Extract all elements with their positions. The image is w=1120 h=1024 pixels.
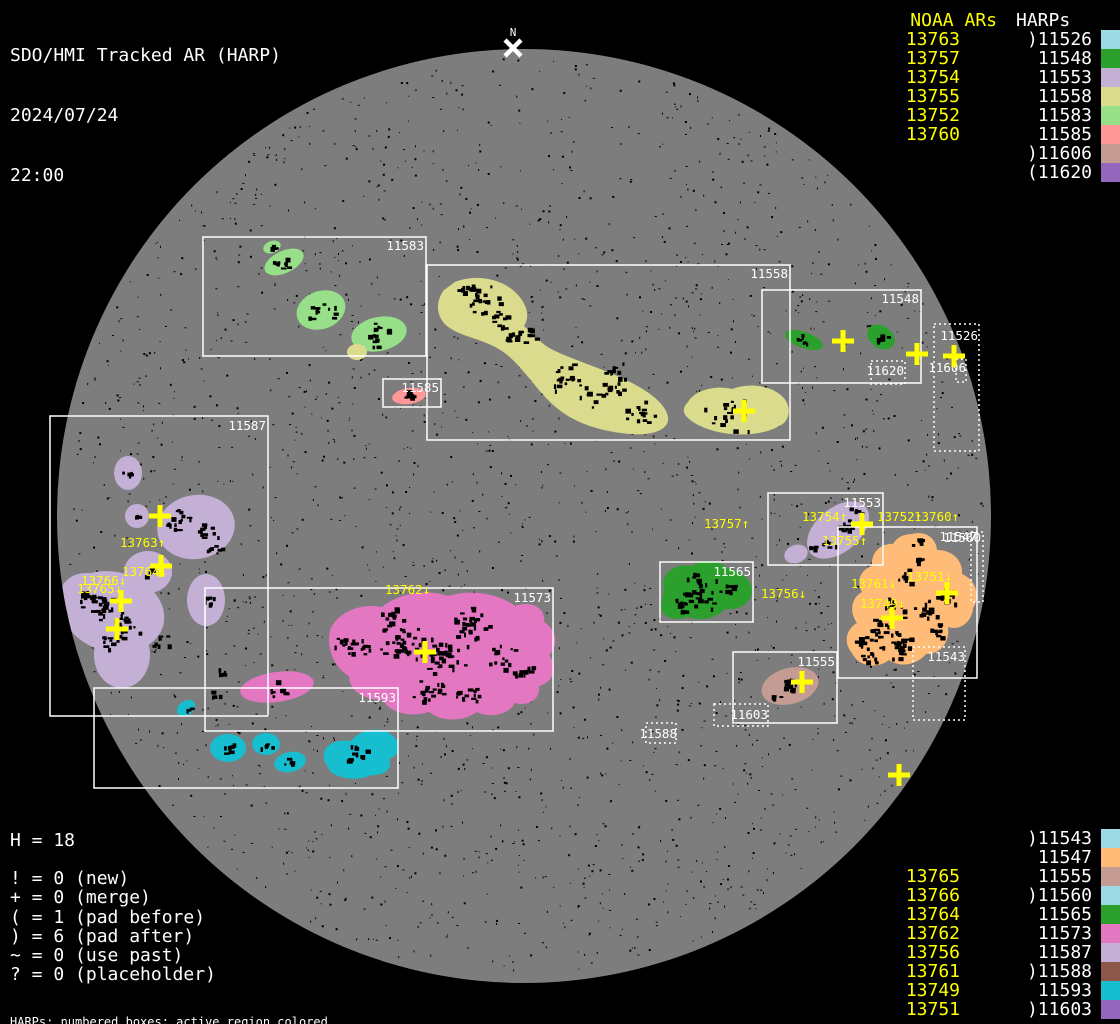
legend-row: 1375611587	[900, 943, 1120, 962]
harp-number: )11606	[960, 144, 1092, 163]
harp-number: 11558	[960, 87, 1092, 106]
harp-number: 11555	[960, 867, 1092, 886]
noaa-ar-number: 13762	[900, 924, 960, 943]
status-symbol-line: ) = 6 (pad after)	[10, 927, 216, 946]
harp-number: 11585	[960, 125, 1092, 144]
harp-box-label-11588: 11588	[639, 726, 677, 741]
harp-box-label-11603: 11603	[730, 707, 768, 722]
harp-color-swatch	[1101, 924, 1120, 943]
legend-row: 1376411565	[900, 905, 1120, 924]
harp-box-label-11565: 11565	[713, 564, 751, 579]
noaa-label: 13762↓	[385, 582, 430, 597]
harp-color-swatch	[1101, 867, 1120, 886]
status-symbol-line: + = 0 (merge)	[10, 888, 216, 907]
harp-number: )11526	[960, 30, 1092, 49]
noaa-label: 13754↑	[802, 509, 847, 524]
status-symbol-line: ? = 0 (placeholder)	[10, 965, 216, 984]
noaa-label: 13763↑	[120, 535, 165, 550]
harp-color-swatch	[1101, 87, 1120, 106]
noaa-label: 13760↑	[914, 509, 959, 524]
observation-time: 22:00	[10, 166, 281, 186]
harp-number: 11553	[960, 68, 1092, 87]
harp-color-swatch	[1101, 962, 1120, 981]
noaa-ar-number: 13764	[900, 905, 960, 924]
harp-color-swatch	[1101, 1000, 1120, 1019]
footnotes: HARPs: numbered boxes; active region col…	[10, 991, 429, 1024]
harp-box-label-11573: 11573	[513, 590, 551, 605]
harp-number: 11587	[960, 943, 1092, 962]
harp-color-swatch	[1101, 905, 1120, 924]
noaa-label: 13755↑	[822, 533, 867, 548]
harp-box-label-11548: 11548	[881, 291, 919, 306]
harp-number: 11565	[960, 905, 1092, 924]
harp-number: 11547	[960, 848, 1092, 867]
legend-bottom: )1154311547137651155513766)1156013764115…	[900, 829, 1120, 1019]
harp-number: 11548	[960, 49, 1092, 68]
legend-row: 13763)11526	[900, 30, 1120, 49]
noaa-label: 13761↓	[851, 576, 896, 591]
harp-color-swatch	[1101, 68, 1120, 87]
observation-date: 2024/07/24	[10, 106, 281, 126]
header: SDO/HMI Tracked AR (HARP) 2024/07/24 22:…	[10, 6, 281, 226]
noaa-ar-number: 13755	[900, 87, 960, 106]
harp-color-swatch	[1101, 943, 1120, 962]
noaa-ar-number: 13763	[900, 30, 960, 49]
harp-color-swatch	[1101, 848, 1120, 867]
noaa-ar-number: 13756	[900, 943, 960, 962]
status-symbol-legend: ! = 0 (new)+ = 0 (merge)( = 1 (pad befor…	[10, 869, 216, 985]
legend-row: 13766)11560	[900, 886, 1120, 905]
noaa-ar-number: 13760	[900, 125, 960, 144]
legend-row: 1374911593	[900, 981, 1120, 1000]
noaa-ar-number: 13754	[900, 68, 960, 87]
harps-header: HARPs	[1016, 11, 1070, 30]
harp-number: )11588	[960, 962, 1092, 981]
harp-color-swatch	[1101, 163, 1120, 182]
noaa-label: 13756↓	[761, 586, 806, 601]
legend-row: 1375511558	[900, 87, 1120, 106]
noaa-ars-header: NOAA ARs	[900, 11, 997, 30]
harp-box-label-11543: 11543	[927, 649, 965, 664]
footnote-harps: HARPs: numbered boxes; active region col…	[10, 1016, 429, 1024]
harp-number: (11620	[960, 163, 1092, 182]
noaa-label: 13751↓	[907, 569, 952, 584]
legend-row: 1376011585	[900, 125, 1120, 144]
harp-color-swatch	[1101, 125, 1120, 144]
noaa-label: 13749↓	[860, 596, 905, 611]
harp-number: 11583	[960, 106, 1092, 125]
harp-box-label-11553: 11553	[843, 495, 881, 510]
harp-box-label-11558: 11558	[750, 266, 788, 281]
harp-color-swatch	[1101, 886, 1120, 905]
noaa-ar-number: 13766	[900, 886, 960, 905]
noaa-label: 13765↓	[77, 581, 122, 596]
north-label: N	[510, 26, 517, 39]
noaa-ar-number: 13761	[900, 962, 960, 981]
legend-row: (11620	[900, 163, 1120, 182]
status-symbol-line: ( = 1 (pad before)	[10, 908, 216, 927]
harp-number: )11560	[960, 886, 1092, 905]
legend-row: 1375411553	[900, 68, 1120, 87]
legend-row: )11606	[900, 144, 1120, 163]
harp-color-swatch	[1101, 106, 1120, 125]
legend-row: 1376211573	[900, 924, 1120, 943]
harp-box-label-11555: 11555	[797, 654, 835, 669]
harp-box-label-11526: 11526	[940, 328, 978, 343]
harp-number: 11573	[960, 924, 1092, 943]
noaa-label: 13764↓	[122, 564, 167, 579]
legend-row: )11543	[900, 829, 1120, 848]
harp-color-swatch	[1101, 829, 1120, 848]
harp-color-swatch	[1101, 144, 1120, 163]
noaa-ar-number: 13749	[900, 981, 960, 1000]
legend-row: 11547	[900, 848, 1120, 867]
harp-number: 11593	[960, 981, 1092, 1000]
harp-box-label-11620: 11620	[866, 363, 904, 378]
status-symbol-line: ~ = 0 (use past)	[10, 946, 216, 965]
noaa-label: 13757↑	[704, 516, 749, 531]
legend-top-header: NOAA ARs HARPs	[900, 11, 1070, 30]
noaa-ar-number: 13765	[900, 867, 960, 886]
noaa-ar-number: 13751	[900, 1000, 960, 1019]
harp-number: )11603	[960, 1000, 1092, 1019]
harp-map-stage: 1158311558115481158511587115731159311565…	[0, 0, 1120, 1024]
legend-row: 1375711548	[900, 49, 1120, 68]
harp-color-swatch	[1101, 49, 1120, 68]
harp-box-label-11585: 11585	[401, 380, 439, 395]
status-symbol-line: ! = 0 (new)	[10, 869, 216, 888]
harp-box-label-11560: 11560	[943, 530, 981, 545]
noaa-ar-number: 13752	[900, 106, 960, 125]
legend-row: 1376511555	[900, 867, 1120, 886]
legend-row: 1375211583	[900, 106, 1120, 125]
harp-color-swatch	[1101, 30, 1120, 49]
harp-color-swatch	[1101, 981, 1120, 1000]
legend-row: 13761)11588	[900, 962, 1120, 981]
harp-box-label-11606: 11606	[928, 360, 966, 375]
legend-row: 13751)11603	[900, 1000, 1120, 1019]
legend-top: 13763)1152613757115481375411553137551155…	[900, 30, 1120, 182]
harp-count: H = 18	[10, 831, 75, 850]
harp-box-label-11593: 11593	[358, 690, 396, 705]
noaa-ar-number: 13757	[900, 49, 960, 68]
harp-box-label-11583: 11583	[386, 238, 424, 253]
harp-number: )11543	[960, 829, 1092, 848]
page-title: SDO/HMI Tracked AR (HARP)	[10, 46, 281, 66]
harp-box-label-11587: 11587	[228, 418, 266, 433]
